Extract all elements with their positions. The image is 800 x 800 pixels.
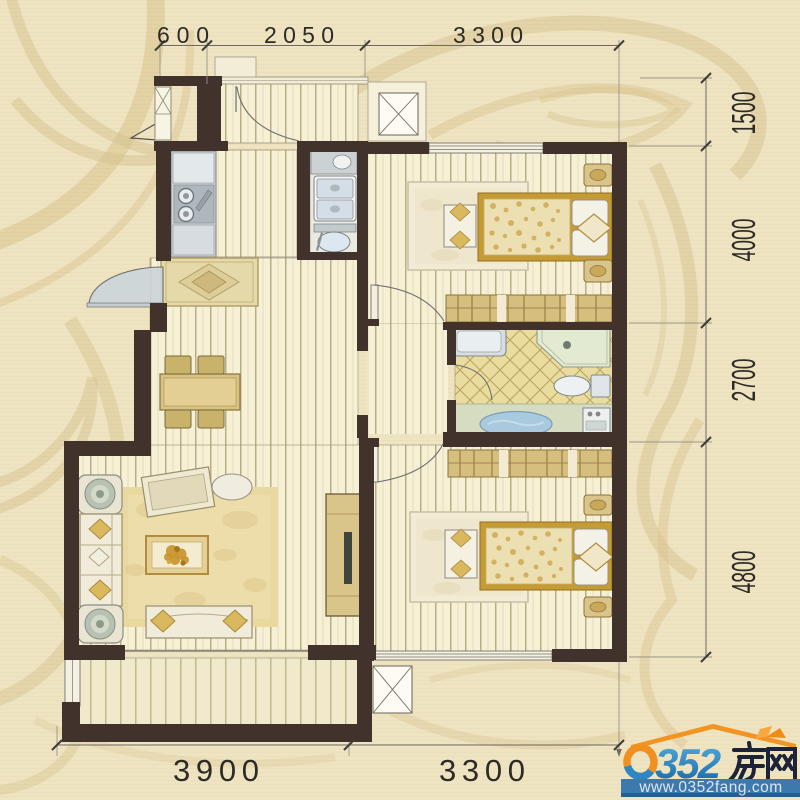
svg-text:2700: 2700 xyxy=(725,359,762,402)
svg-text:1500: 1500 xyxy=(725,92,762,135)
svg-text:4800: 4800 xyxy=(725,551,762,594)
svg-text:600: 600 xyxy=(157,22,209,48)
svg-text:4000: 4000 xyxy=(725,219,762,262)
svg-text:www.0352fang.com: www.0352fang.com xyxy=(638,779,782,796)
